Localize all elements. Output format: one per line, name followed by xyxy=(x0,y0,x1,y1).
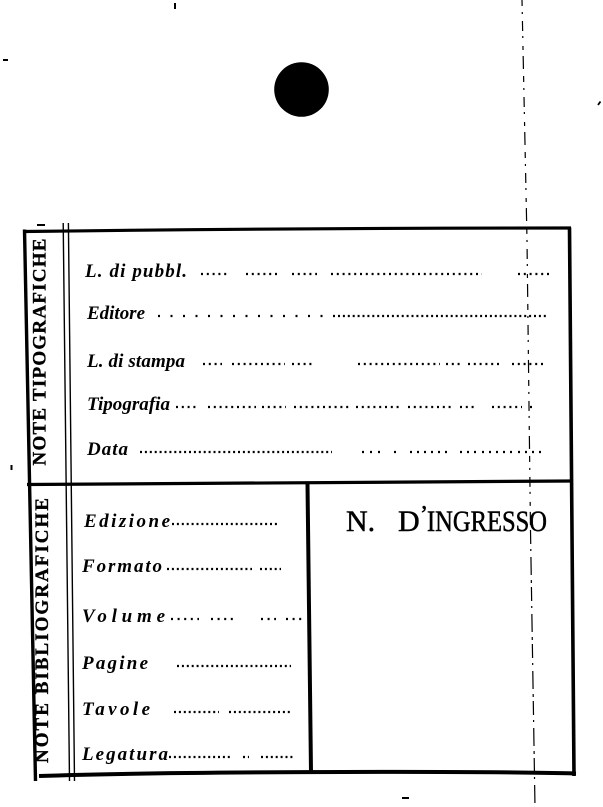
svg-text:INGRESSO: INGRESSO xyxy=(427,505,547,538)
svg-text:NOTE TIPOGRAFICHE: NOTE TIPOGRAFICHE xyxy=(30,239,51,466)
svg-text:Data: Data xyxy=(86,439,129,460)
svg-text:NOTE BIBLIOGRAFICHE: NOTE BIBLIOGRAFICHE xyxy=(32,498,53,763)
svg-text:Formato: Formato xyxy=(81,556,162,577)
svg-text:Editore: Editore xyxy=(86,303,146,324)
svg-text:D: D xyxy=(398,505,420,538)
svg-text:N.: N. xyxy=(346,505,375,538)
svg-text:Tipografia: Tipografia xyxy=(87,394,171,415)
svg-text:L. di stampa: L. di stampa xyxy=(86,351,186,372)
svg-text:L. di pubbl.: L. di pubbl. xyxy=(84,261,187,282)
